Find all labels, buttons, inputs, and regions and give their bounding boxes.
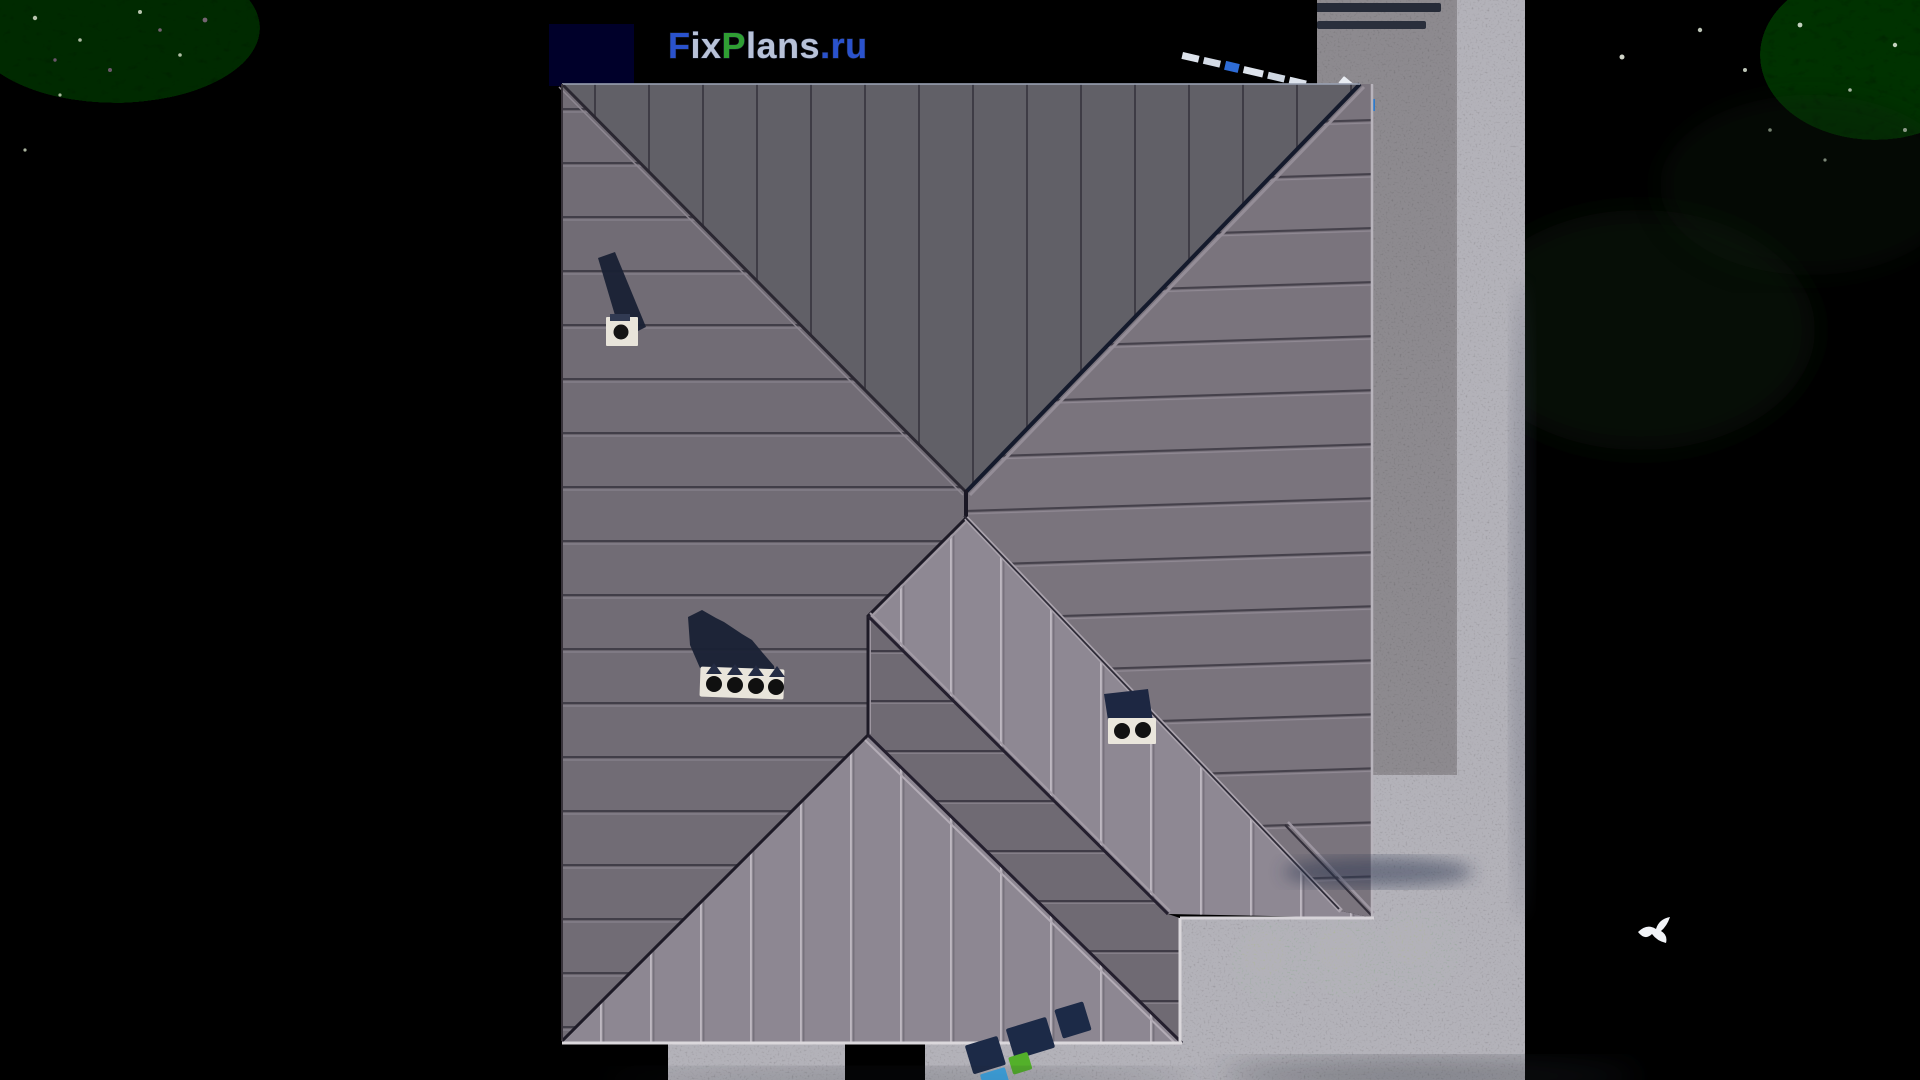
path-edge-shadow xyxy=(1510,280,1534,920)
aerial-roof-render: FixPlans.ru xyxy=(0,0,1920,1080)
watermark-seg-ix: ix xyxy=(691,25,722,66)
chimney-c xyxy=(1104,689,1156,744)
chimney-b-vent xyxy=(768,679,784,695)
chimney-c-vent xyxy=(1135,722,1151,738)
chimney-b-vent xyxy=(727,677,743,693)
chimney-b-vent xyxy=(748,678,764,694)
terrace-blotch xyxy=(865,26,1055,78)
watermark-seg-p: P xyxy=(722,25,747,66)
terrace-step xyxy=(1317,21,1426,29)
gravel-top xyxy=(1317,0,1457,86)
bed-shadow xyxy=(1283,857,1473,887)
terrace-blotch xyxy=(1080,8,1220,48)
gravel-strip xyxy=(1372,85,1457,775)
scene-canvas: FixPlans.ru xyxy=(0,0,1920,1080)
roof xyxy=(559,84,1374,1046)
chimney-c-vent xyxy=(1114,723,1130,739)
chimney-a-cap xyxy=(610,314,630,321)
chimney-b-vent xyxy=(706,676,722,692)
terrace-light-slab xyxy=(549,24,634,86)
watermark-seg-ru: .ru xyxy=(820,25,868,66)
watermark-seg-f: F xyxy=(668,25,691,66)
path-lower-right xyxy=(1180,918,1376,1080)
terrace-step xyxy=(1315,3,1441,12)
watermark-text: FixPlans.ru xyxy=(668,25,868,66)
bird-distant xyxy=(1620,55,1625,60)
chimney-a-vent xyxy=(614,325,629,340)
watermark-seg-lans: lans xyxy=(746,25,820,66)
